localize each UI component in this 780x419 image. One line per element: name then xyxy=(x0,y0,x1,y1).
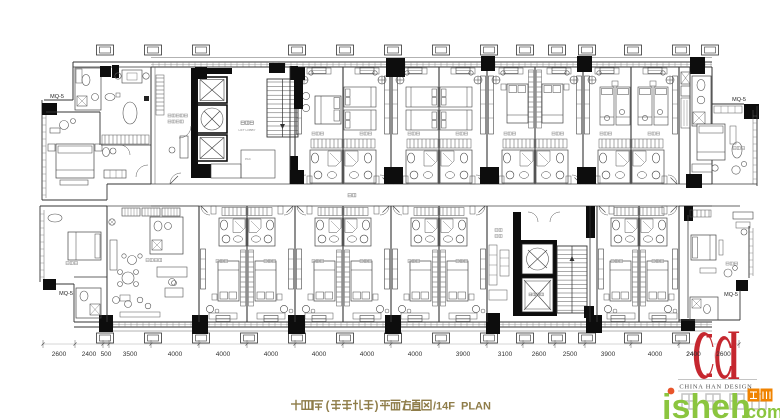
svg-text:.com: .com xyxy=(741,402,780,419)
svg-text:2600: 2600 xyxy=(716,351,731,358)
svg-text:jsheh: jsheh xyxy=(661,388,751,419)
svg-text:2600: 2600 xyxy=(532,351,547,358)
svg-text:MQ-5: MQ-5 xyxy=(50,94,64,100)
svg-text:3900: 3900 xyxy=(601,351,616,358)
svg-text:3500: 3500 xyxy=(123,351,138,358)
svg-text:4000: 4000 xyxy=(216,351,231,358)
svg-text:(: ( xyxy=(326,401,330,413)
svg-text:MQ-5: MQ-5 xyxy=(724,292,738,298)
svg-text:2400: 2400 xyxy=(686,351,701,358)
svg-text:MQ-5: MQ-5 xyxy=(732,97,746,103)
svg-text:/14F: /14F xyxy=(433,401,455,413)
svg-text:MQ-5: MQ-5 xyxy=(59,291,73,297)
svg-text:2500: 2500 xyxy=(563,351,578,358)
svg-text:4000: 4000 xyxy=(168,351,183,358)
svg-text:PLAN: PLAN xyxy=(461,401,491,413)
svg-text:3100: 3100 xyxy=(498,351,513,358)
svg-text:4000: 4000 xyxy=(408,351,423,358)
svg-text:4000: 4000 xyxy=(312,351,327,358)
svg-text:4000: 4000 xyxy=(264,351,279,358)
svg-text:4000: 4000 xyxy=(360,351,375,358)
svg-text:500: 500 xyxy=(101,351,112,358)
svg-text:): ) xyxy=(375,401,379,413)
svg-text:3900: 3900 xyxy=(456,351,471,358)
svg-text:2600: 2600 xyxy=(52,351,67,358)
svg-text:2400: 2400 xyxy=(82,351,97,358)
svg-text:LIFT LOBBY: LIFT LOBBY xyxy=(239,128,256,132)
svg-text:PAC: PAC xyxy=(245,157,252,161)
svg-text:4000: 4000 xyxy=(648,351,663,358)
